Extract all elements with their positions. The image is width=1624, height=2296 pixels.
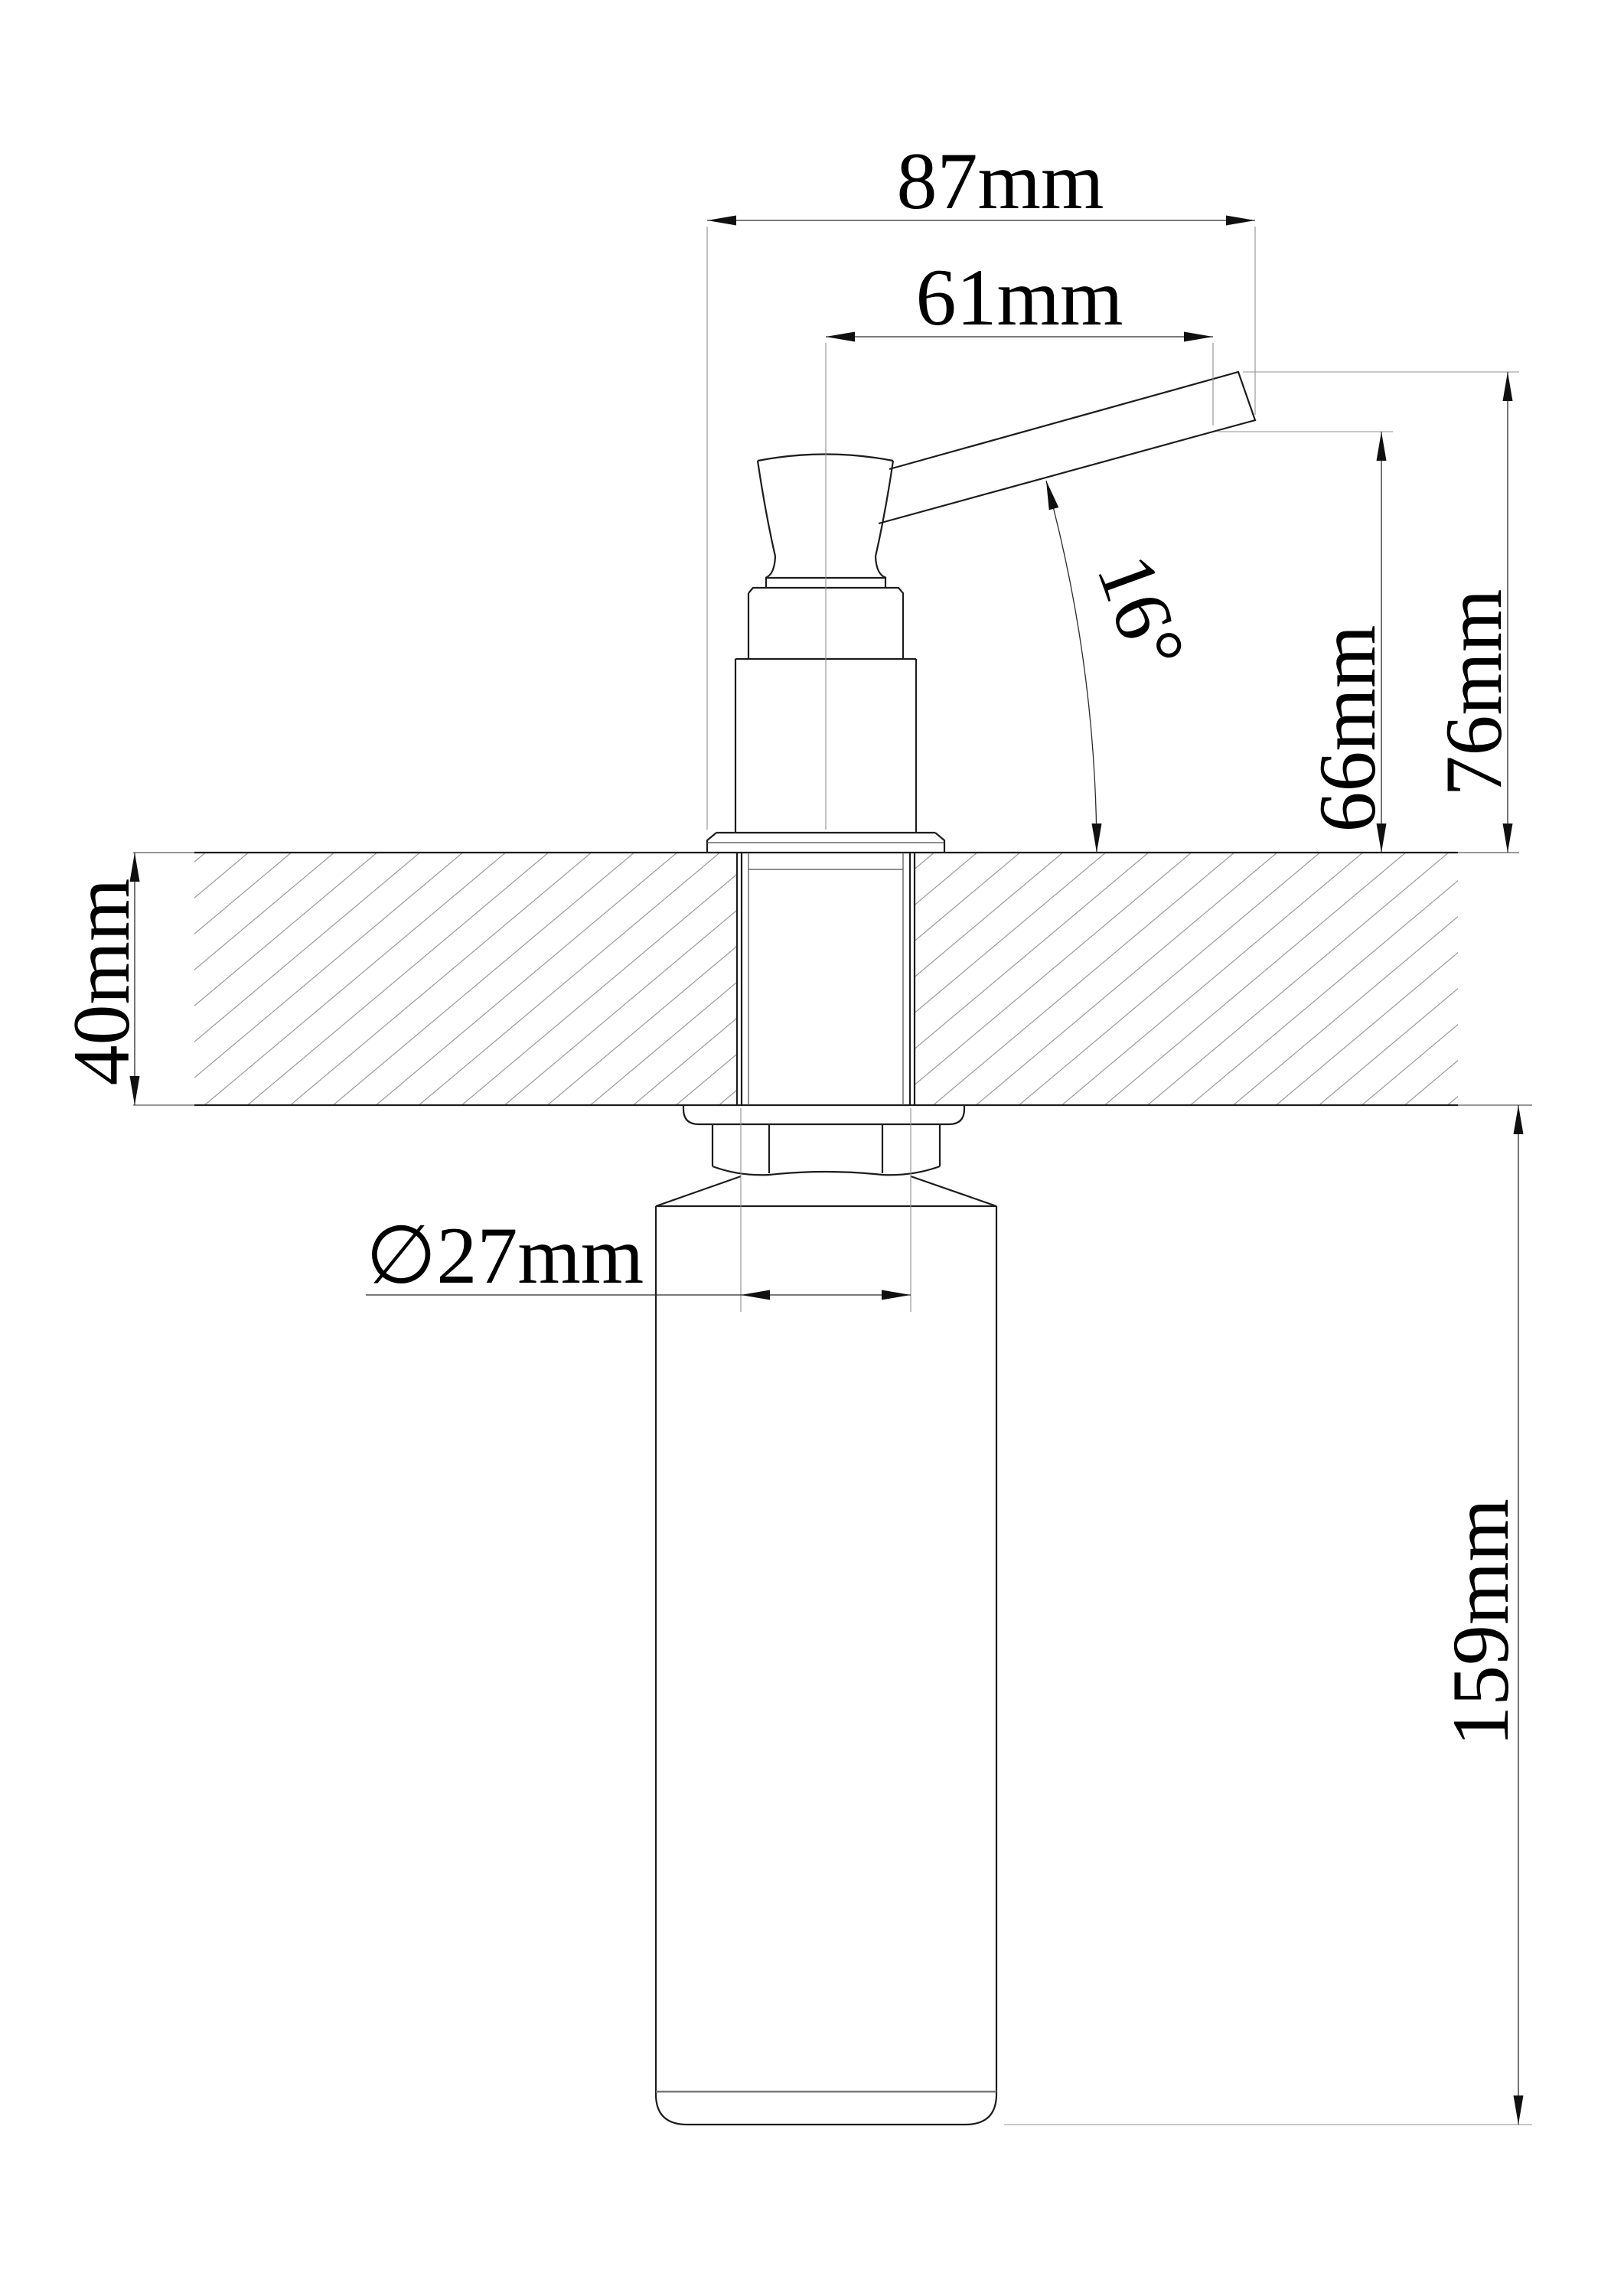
arrowhead-right bbox=[1226, 216, 1255, 226]
dimension-87mm: 87mm bbox=[707, 136, 1255, 830]
pump-knob-right-side bbox=[876, 461, 893, 556]
pump-knob-fillet-left bbox=[765, 556, 775, 578]
arrowhead-right bbox=[882, 1290, 911, 1300]
dim-87mm-label: 87mm bbox=[897, 136, 1104, 226]
page: { "drawing": { "units": "mm", "backgroun… bbox=[0, 0, 1624, 2296]
dim-66mm-label: 66mm bbox=[1303, 625, 1392, 833]
arrowhead-top bbox=[1046, 481, 1058, 510]
arrowhead-bottom bbox=[1092, 823, 1102, 853]
dim-40mm-label: 40mm bbox=[57, 879, 146, 1086]
arrowhead-top bbox=[1503, 372, 1513, 401]
dimension-27mm-diameter: ∅27mm bbox=[366, 1108, 911, 1312]
bottle-bottom bbox=[656, 2095, 996, 2125]
under-deck-washer bbox=[683, 1105, 964, 1124]
arrowhead-bottom bbox=[1514, 2095, 1524, 2125]
bottle bbox=[656, 1206, 996, 2125]
dim-159mm-label: 159mm bbox=[1436, 1499, 1525, 1746]
countertop-hatch-right bbox=[915, 853, 1458, 1105]
spout bbox=[879, 372, 1255, 523]
arrowhead-left bbox=[741, 1290, 770, 1300]
dim-76mm-label: 76mm bbox=[1429, 589, 1518, 797]
arrowhead-bottom bbox=[1503, 823, 1513, 853]
dim-61mm-label: 61mm bbox=[916, 253, 1123, 342]
pump-knob-fillet-right bbox=[876, 556, 886, 578]
arrowhead-left bbox=[707, 216, 736, 226]
countertop-hatch-left bbox=[194, 853, 737, 1105]
arrowhead-left bbox=[826, 332, 855, 342]
nut-chamfer bbox=[713, 1166, 940, 1175]
dimension-40mm: 40mm bbox=[57, 853, 146, 1105]
bottle-shoulder bbox=[656, 1176, 996, 1206]
arrowhead-right bbox=[1184, 332, 1213, 342]
arrowhead-top bbox=[130, 853, 140, 882]
dimension-61mm: 61mm bbox=[826, 253, 1213, 830]
technical-drawing: 87mm 61mm 16° 66mm 76mm 40mm bbox=[0, 0, 1624, 2296]
hex-nut bbox=[713, 1124, 940, 1175]
dimension-66mm: 66mm bbox=[1218, 432, 1393, 853]
angle-arc bbox=[1046, 481, 1097, 853]
dimension-159mm: 159mm bbox=[1004, 1105, 1532, 2125]
dimension-16deg: 16° bbox=[1046, 481, 1203, 853]
dim-16deg-label: 16° bbox=[1080, 543, 1203, 680]
dim-27mm-label: ∅27mm bbox=[366, 1211, 644, 1300]
countertop-section bbox=[133, 853, 1532, 1105]
arrowhead-top bbox=[1514, 1105, 1524, 1134]
threaded-shank bbox=[742, 853, 910, 1105]
arrowhead-top bbox=[1377, 432, 1387, 461]
pump-knob-left-side bbox=[758, 461, 775, 556]
